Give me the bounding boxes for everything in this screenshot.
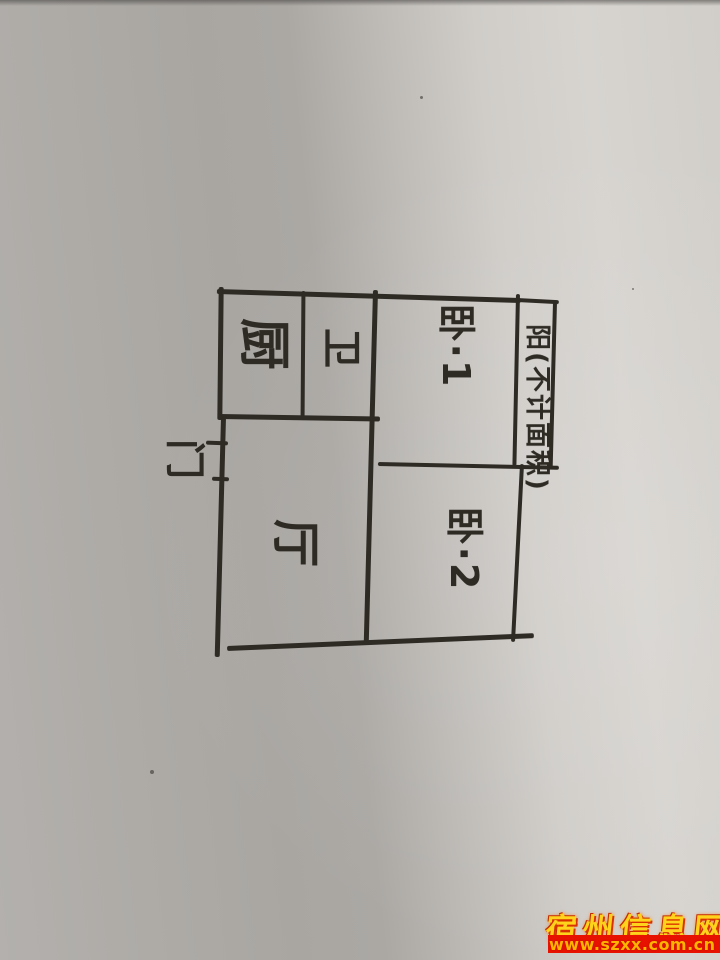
watermark-url: www.szxx.com.cn (548, 935, 716, 953)
room-label-living-room: 厅 (271, 519, 319, 567)
wall-bedroom1-right (512, 294, 520, 466)
wall-left-upper (217, 287, 223, 420)
paper-speck (150, 770, 154, 774)
room-label-bathroom: 卫 (321, 328, 361, 368)
wall-mid-horizontal (220, 414, 380, 422)
room-label-balcony: 阳(不计面积) (524, 324, 550, 492)
wall-kitchen-bath-divider (301, 291, 306, 419)
paper-speck (420, 96, 423, 99)
wall-hall-left (215, 417, 226, 657)
room-label-entry-door: 门 (164, 439, 204, 479)
floorplan-photo: 厨 卫 卧·1 卧·2 厅 阳(不计面积) 门 宿州信息网 www.szxx.c… (0, 0, 720, 960)
door-opening-tick-top (206, 441, 228, 446)
photo-top-shadow (0, 0, 720, 6)
wall-center-vertical (364, 290, 378, 644)
door-opening-tick-bottom (212, 477, 229, 482)
room-label-bedroom-1: 卧·1 (437, 304, 475, 389)
watermark-url-bar: www.szxx.com.cn (548, 935, 720, 953)
room-label-bedroom-2: 卧·2 (445, 507, 483, 592)
paper-speck (632, 288, 634, 290)
room-label-kitchen: 厨 (237, 318, 289, 370)
wall-top-outer (217, 289, 521, 303)
wall-bottom-outer (227, 633, 534, 651)
